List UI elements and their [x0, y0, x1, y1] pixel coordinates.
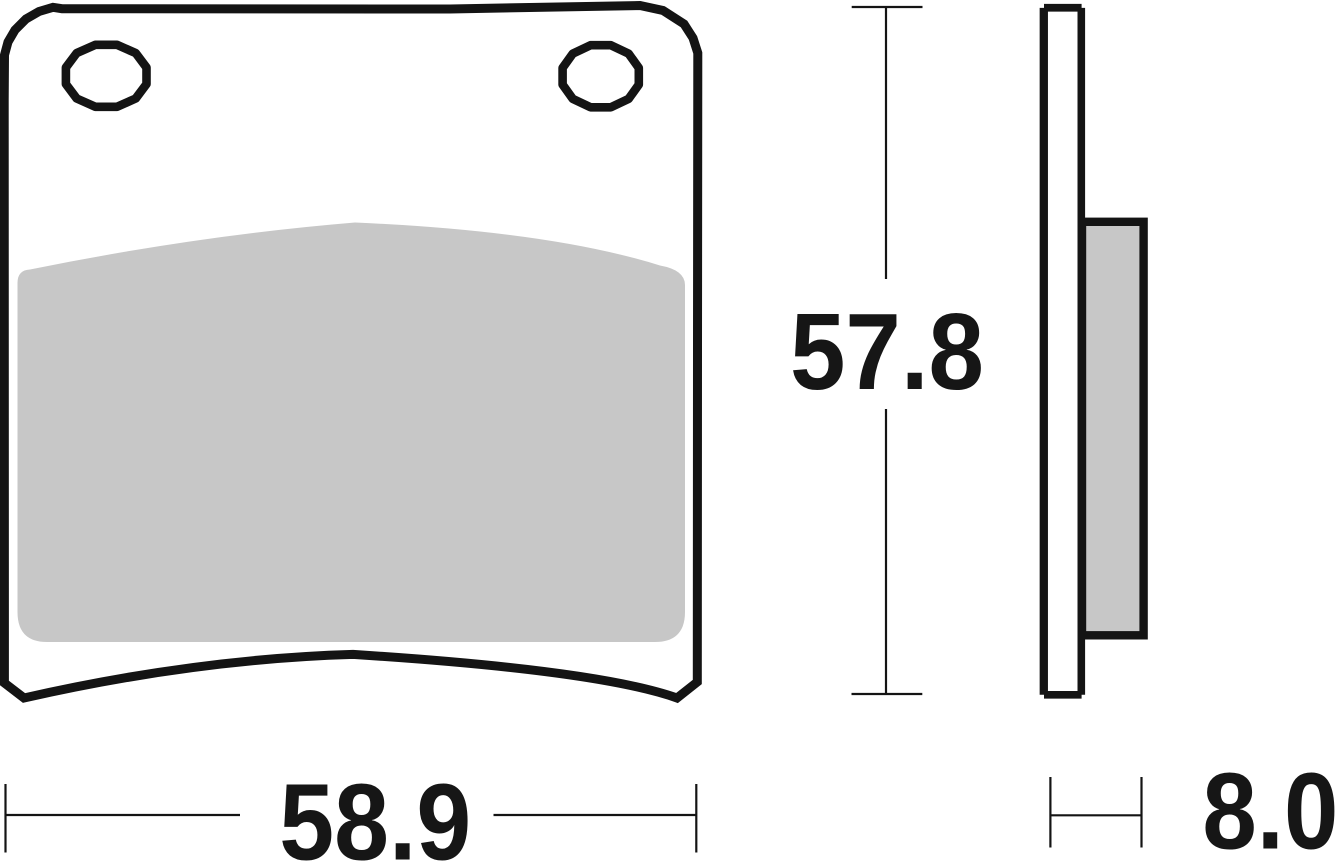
svg-text:8.0: 8.0 — [1202, 751, 1337, 862]
svg-text:58.9: 58.9 — [279, 762, 471, 862]
svg-text:57.8: 57.8 — [790, 291, 984, 413]
